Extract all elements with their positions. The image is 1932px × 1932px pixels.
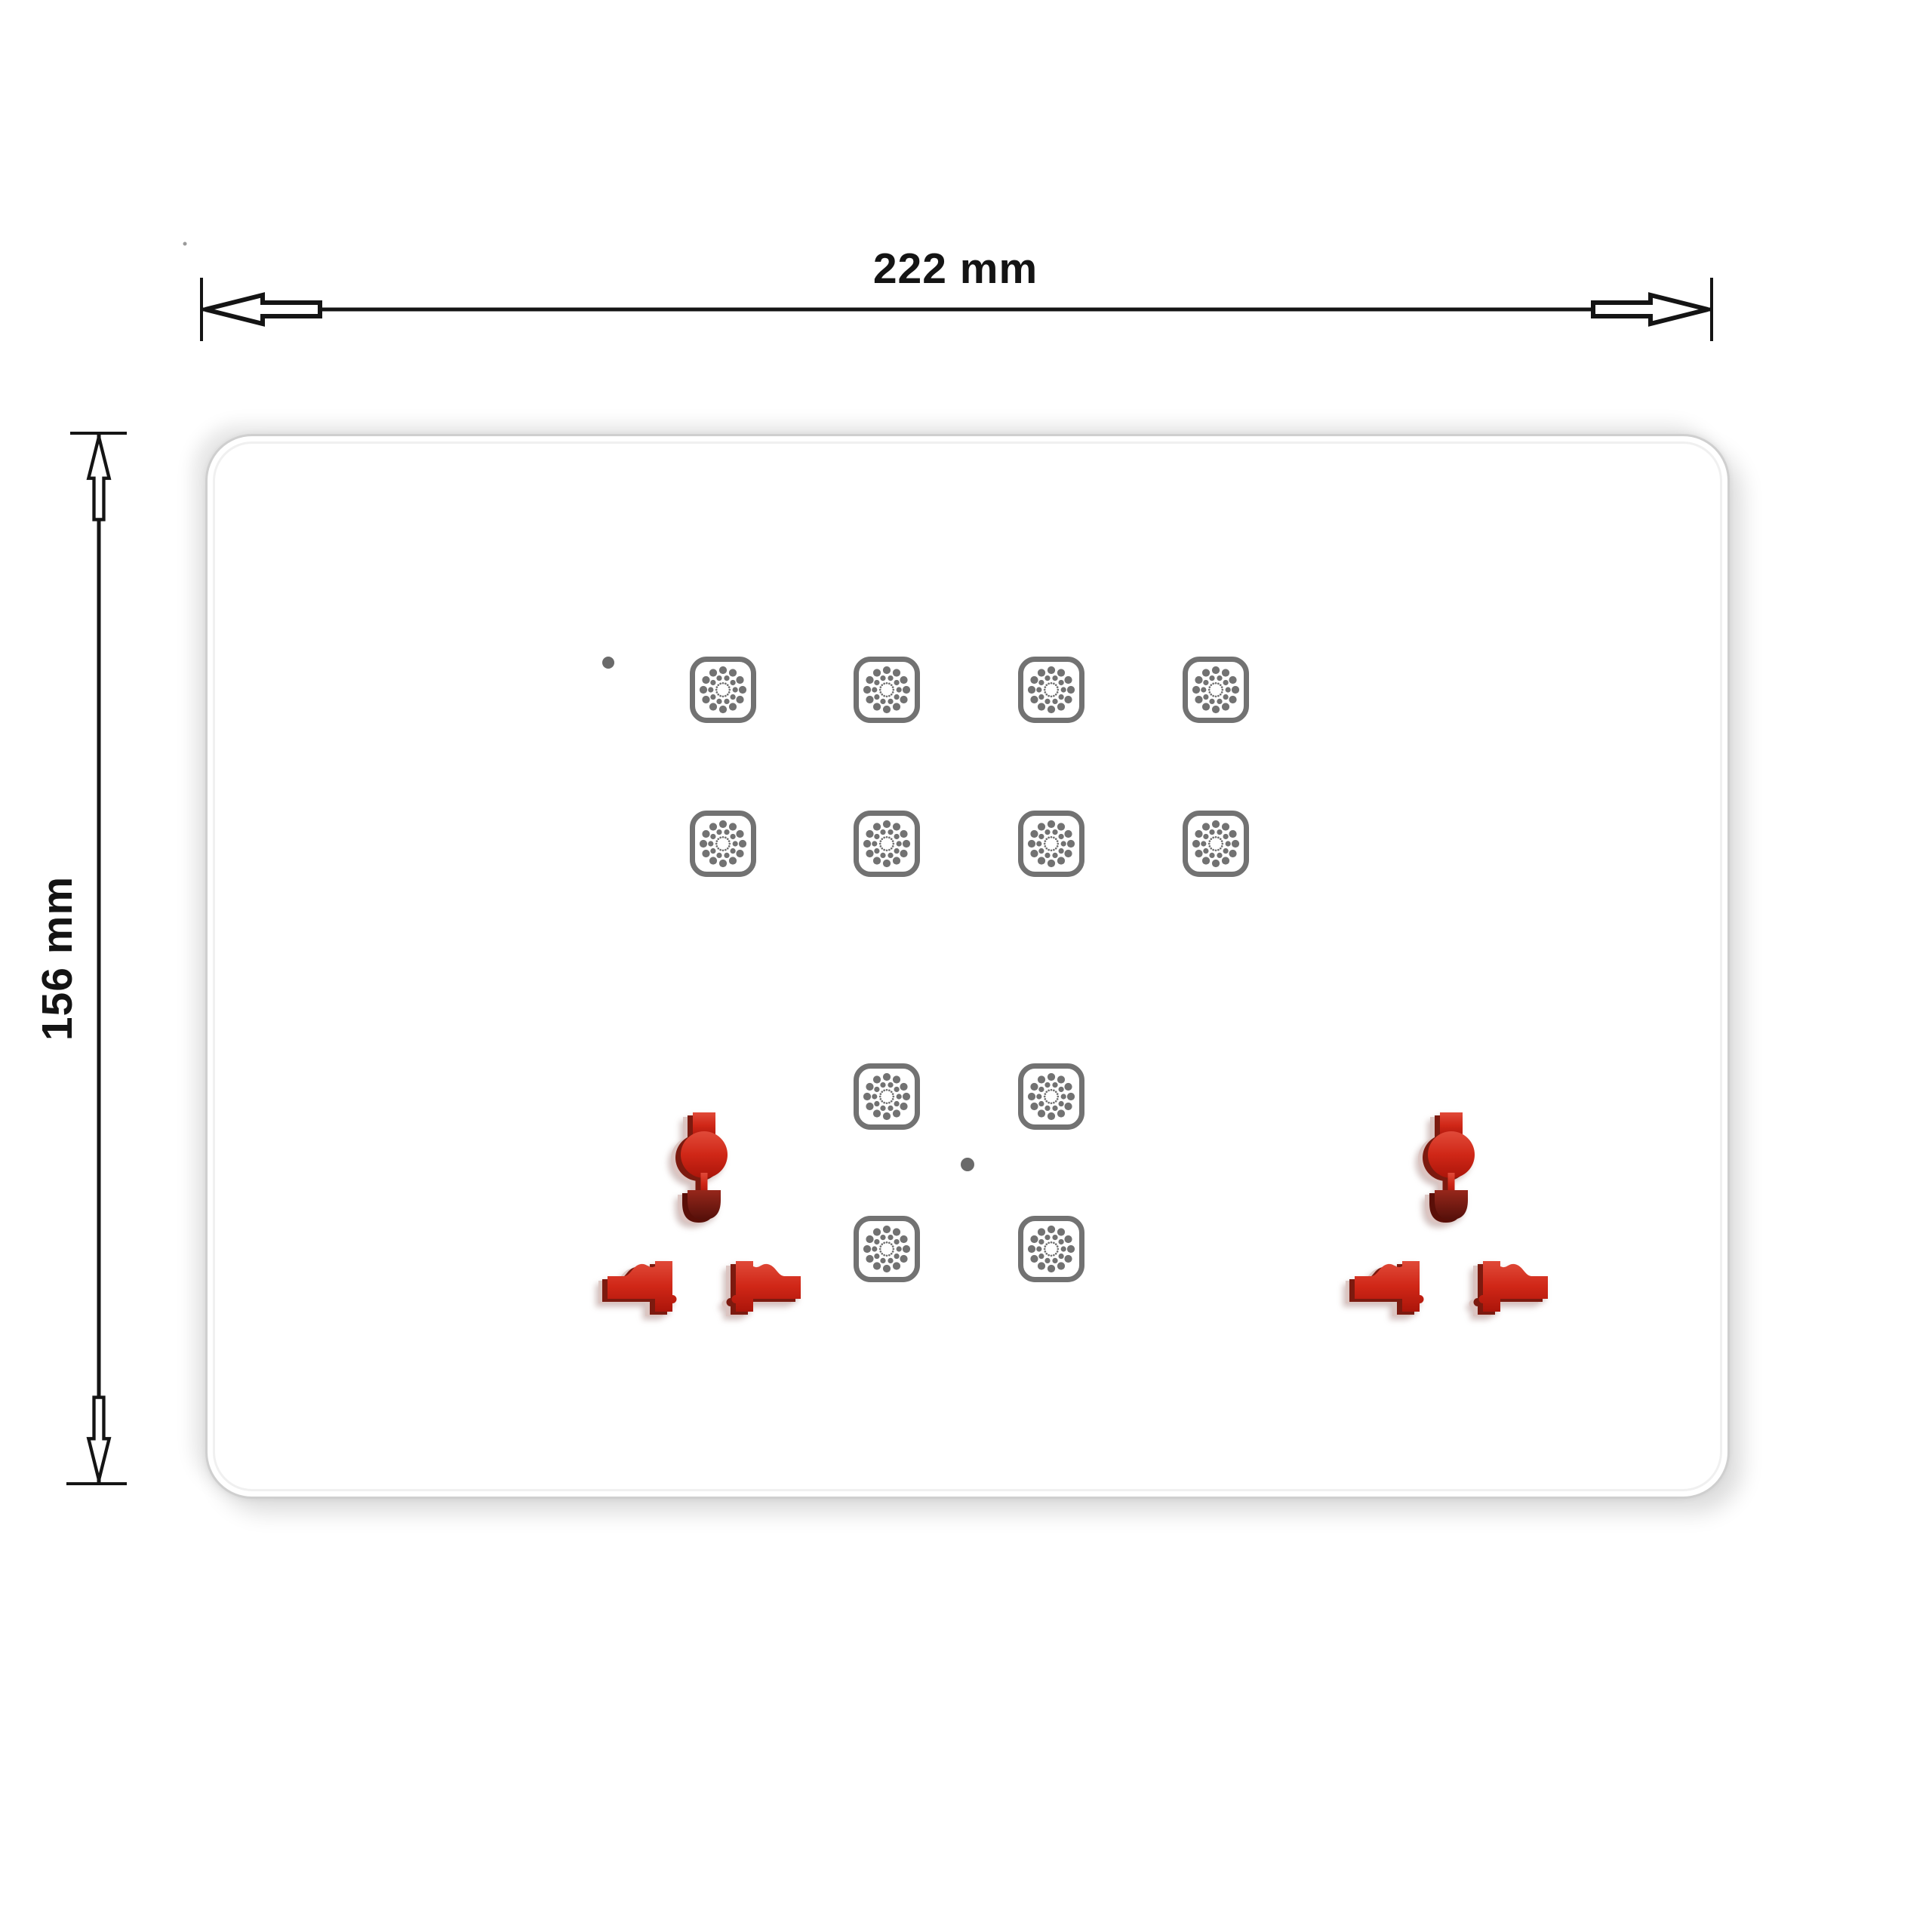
- width-dimension-label: 222 mm: [873, 244, 1038, 294]
- height-dimension-label: 156 mm: [32, 876, 82, 1041]
- drawing-canvas: 222 mm 156 mm: [0, 0, 1932, 1932]
- arrow-right-icon: [1593, 295, 1708, 324]
- touch-button: [1017, 1063, 1085, 1131]
- arrow-down-icon: [88, 1398, 109, 1480]
- indicator-dot: [961, 1158, 974, 1171]
- touch-button: [853, 810, 921, 878]
- stray-tick-mark: [183, 242, 187, 246]
- indicator-dot: [602, 657, 614, 669]
- switch-panel: [205, 434, 1730, 1499]
- touch-button: [689, 810, 757, 878]
- universal-socket-cutout: [493, 1064, 704, 1291]
- universal-socket-cutout: [1240, 1064, 1451, 1291]
- touch-button: [1182, 656, 1250, 724]
- touch-button: [853, 1215, 921, 1283]
- touch-button: [853, 1063, 921, 1131]
- touch-button: [1017, 1215, 1085, 1283]
- touch-button: [1017, 810, 1085, 878]
- touch-button: [1182, 810, 1250, 878]
- arrow-up-icon: [88, 437, 109, 519]
- touch-button: [853, 656, 921, 724]
- touch-button: [1017, 656, 1085, 724]
- arrow-left-icon: [205, 295, 320, 324]
- touch-button: [689, 656, 757, 724]
